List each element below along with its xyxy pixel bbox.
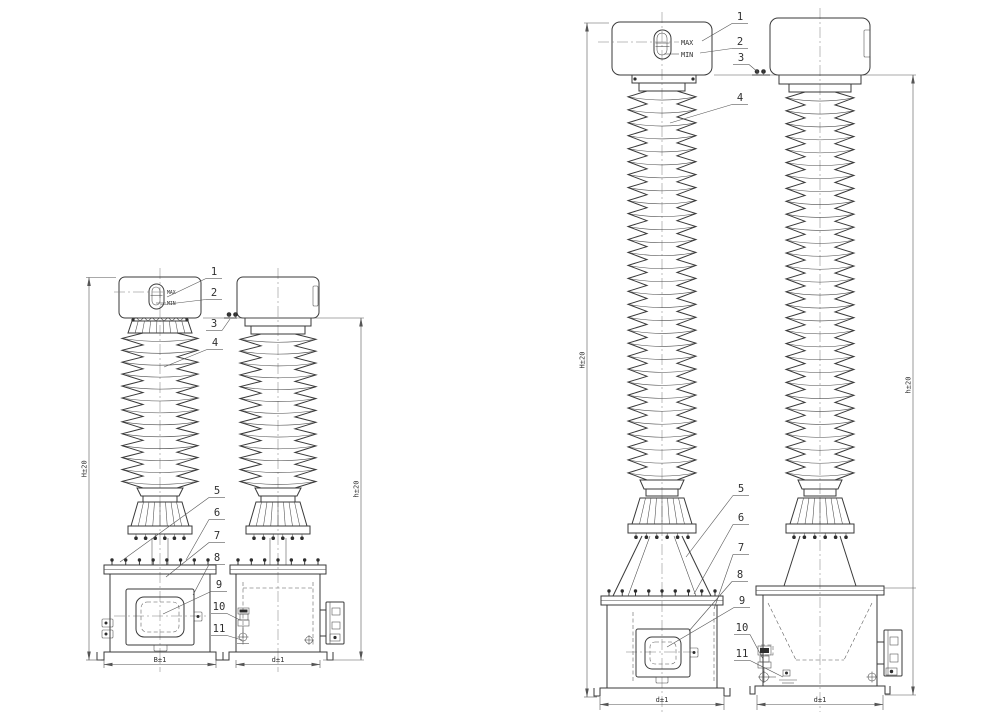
dim-width-left-front: B±1 bbox=[104, 656, 216, 668]
foot-right bbox=[210, 652, 223, 660]
callout-5-left: 5 bbox=[120, 485, 225, 562]
bottom-clamp bbox=[786, 498, 854, 539]
callout-number: 6 bbox=[738, 512, 744, 524]
bottom-clamp bbox=[628, 498, 696, 539]
callout-number: 3 bbox=[211, 318, 217, 330]
transformer-outline-drawing: MAXMINB±1d±1H±20h±201234567891011MAXMINd… bbox=[0, 0, 1000, 728]
callout-number: 1 bbox=[737, 11, 743, 23]
min-label: MIN bbox=[681, 51, 693, 59]
foot-left bbox=[750, 686, 763, 694]
foot-right bbox=[717, 688, 730, 696]
callout-number: 5 bbox=[214, 485, 220, 497]
callout-number: 2 bbox=[211, 287, 217, 299]
dim-label: B±1 bbox=[154, 656, 167, 664]
head-flange bbox=[632, 75, 696, 91]
dim-label: d±1 bbox=[814, 696, 827, 704]
terminal-box bbox=[636, 629, 698, 683]
callout-number: 3 bbox=[738, 52, 744, 64]
grounding-terminal bbox=[237, 632, 249, 644]
max-label: MAX bbox=[681, 39, 694, 47]
callout-number: 4 bbox=[737, 92, 743, 104]
callout-number: 9 bbox=[739, 595, 745, 607]
callout-number: 11 bbox=[736, 648, 749, 660]
bottom-clamp bbox=[128, 502, 192, 540]
callout-number: 10 bbox=[213, 601, 226, 613]
head-cover-bolts bbox=[224, 312, 238, 318]
dim-width-right-front: d±1 bbox=[600, 696, 724, 710]
callout-number: 2 bbox=[737, 36, 743, 48]
callout-number: 8 bbox=[737, 569, 743, 581]
callout-3-right: 3 bbox=[733, 52, 759, 73]
callout-3-left: 3 bbox=[206, 318, 230, 331]
callout-number: 6 bbox=[214, 507, 220, 519]
dim-height-left-front: H±20 bbox=[81, 278, 117, 661]
engineering-drawing-canvas: MAXMINB±1d±1H±20h±201234567891011MAXMINd… bbox=[0, 0, 1000, 728]
dim-label: h±20 bbox=[905, 377, 913, 394]
foot-bolt-hole bbox=[304, 635, 314, 645]
callout-number: 4 bbox=[212, 337, 218, 349]
callout-number: 10 bbox=[736, 622, 749, 634]
callout-11-right: 11 bbox=[734, 648, 783, 677]
dim-label: d±1 bbox=[656, 696, 669, 704]
dim-height-right-side: h±20 bbox=[885, 75, 916, 695]
dim-label: H±20 bbox=[579, 352, 587, 369]
dim-label: H±20 bbox=[81, 460, 89, 477]
dim-label: h±20 bbox=[353, 481, 361, 498]
oil-level-gauge bbox=[149, 284, 164, 309]
right-side-view bbox=[750, 8, 902, 712]
terminal-box-side-bracket bbox=[877, 630, 902, 676]
side-fittings bbox=[102, 619, 113, 638]
callout-number: 8 bbox=[214, 552, 220, 564]
callout-number: 11 bbox=[213, 623, 226, 635]
drain-valve bbox=[238, 608, 249, 633]
oil-level-gauge bbox=[654, 30, 671, 59]
terminal-box bbox=[126, 589, 202, 651]
head-cover-bolts bbox=[752, 69, 770, 75]
callout-number: 1 bbox=[211, 266, 217, 278]
foot-bolt-hole bbox=[867, 672, 878, 683]
callout-number: 5 bbox=[738, 483, 744, 495]
foot-left bbox=[223, 652, 236, 660]
drain-valve bbox=[758, 646, 776, 683]
callout-11-left: 11 bbox=[211, 623, 242, 640]
callout-2-right: 2 bbox=[700, 36, 748, 53]
bottom-clamp bbox=[246, 502, 310, 540]
terminal-box-side-bracket bbox=[320, 602, 344, 644]
foot-left bbox=[594, 688, 607, 696]
callout-number: 9 bbox=[216, 579, 222, 591]
left-front-view: MAXMIN bbox=[97, 268, 223, 672]
dim-label: d±1 bbox=[272, 656, 285, 664]
foot-right bbox=[877, 686, 890, 694]
foot-left bbox=[97, 652, 110, 660]
dim-width-left-side: d±1 bbox=[236, 656, 320, 668]
foot-right bbox=[320, 652, 333, 660]
left-side-view bbox=[223, 268, 344, 672]
callout-number: 7 bbox=[214, 530, 220, 542]
callout-number: 7 bbox=[738, 542, 744, 554]
